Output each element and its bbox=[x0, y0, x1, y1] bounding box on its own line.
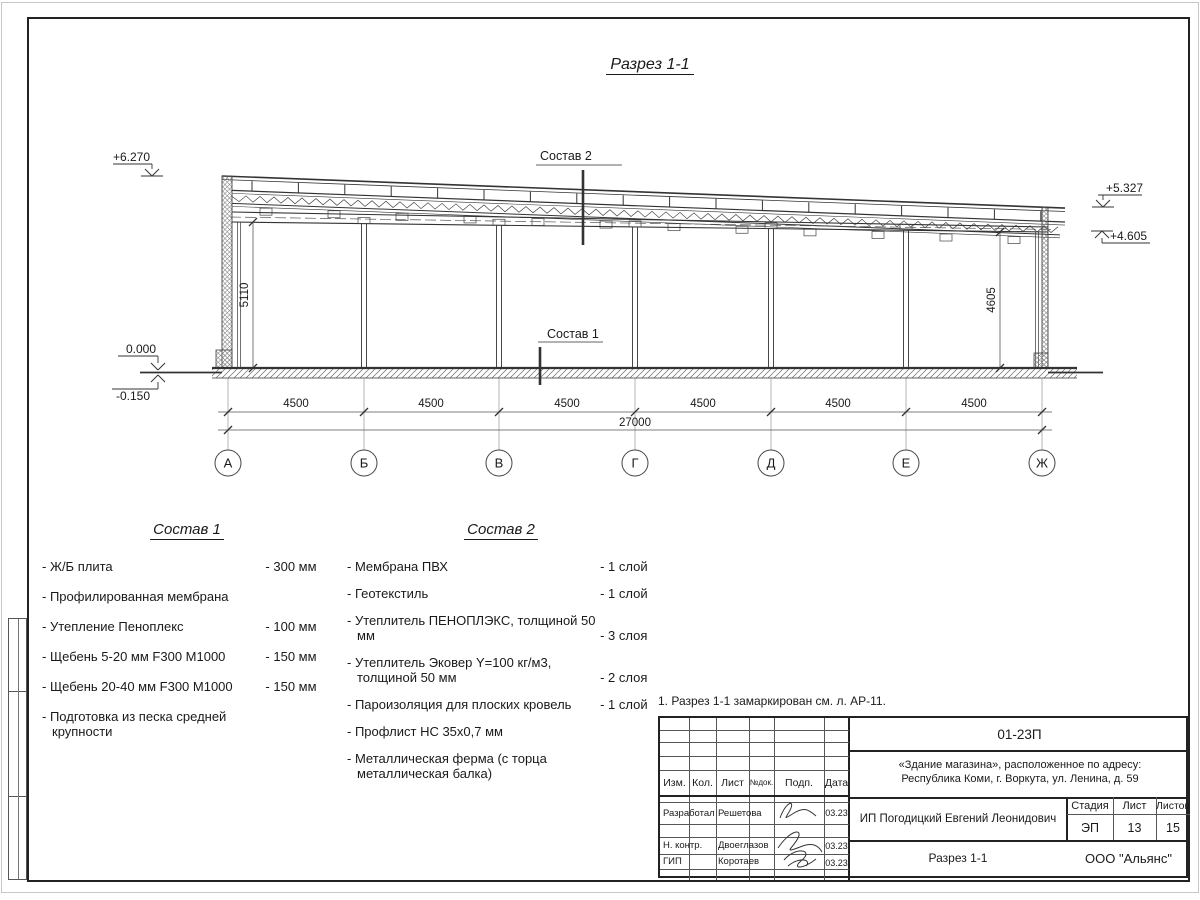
axis-bubble-label: Ж bbox=[1036, 456, 1048, 471]
stamp-role: ГИП bbox=[663, 854, 717, 869]
stamp-project-line2: Республика Коми, г. Воркута, ул. Ленина,… bbox=[860, 772, 1180, 786]
stamp-client: ИП Погодицкий Евгений Леонидович bbox=[852, 802, 1064, 836]
stamp-col-list: Лист bbox=[716, 770, 749, 795]
marker-label-sostav1: Состав 1 bbox=[547, 327, 599, 341]
elevation-beam-right: +4.605 bbox=[1110, 229, 1147, 243]
dim-4500: 4500 bbox=[283, 398, 309, 410]
list-item: - Пароизоляция для плоских кровель- 1 сл… bbox=[347, 697, 655, 712]
dim-4500: 4500 bbox=[418, 398, 444, 410]
stamp-col-podp: Подп. bbox=[774, 770, 824, 795]
elevation-parapet-left: +6.270 bbox=[113, 150, 150, 164]
stamp-stage-label: Стадия bbox=[1067, 798, 1113, 814]
list-item: - Профлист НС 35х0,7 мм bbox=[347, 724, 655, 739]
dim-4500: 4500 bbox=[554, 398, 580, 410]
sheet-note: 1. Разрез 1-1 замаркирован см. л. АР-11. bbox=[658, 694, 886, 708]
stamp-company: ООО "Альянс" bbox=[1067, 840, 1190, 876]
stamp-name: Решетова bbox=[718, 802, 774, 824]
signature-strokes bbox=[772, 796, 830, 878]
height-dim-left: 5110 bbox=[239, 283, 251, 308]
stamp-grid-line bbox=[660, 742, 849, 743]
dim-total: 27000 bbox=[619, 417, 651, 429]
stamp-role: Н. контр. bbox=[663, 837, 717, 854]
sostav2-title: Состав 2 bbox=[347, 522, 655, 537]
axis-bubble-label: Е bbox=[902, 456, 911, 471]
stamp-name: Коротаев bbox=[718, 854, 774, 869]
marker-label-sostav2: Состав 2 bbox=[540, 149, 592, 163]
sostav2-list: Состав 2 - Мембрана ПВХ- 1 слой - Геотек… bbox=[347, 522, 655, 793]
stamp-name: Двоеглазов bbox=[718, 837, 774, 854]
drawing-sheet: Разрез 1-1 +6.270 0.000 -0.150 +5.327 +4… bbox=[0, 0, 1200, 900]
section-geometry bbox=[112, 164, 1150, 476]
list-item: - Утеплитель Эковер Y=100 кг/м3, толщино… bbox=[347, 655, 655, 685]
stamp-sheets-value: 15 bbox=[1156, 815, 1190, 840]
stamp-doc-number: 01-23П bbox=[849, 722, 1190, 746]
stamp-sheet-value: 13 bbox=[1113, 815, 1156, 840]
elevation-minus: -0.150 bbox=[116, 389, 150, 403]
list-item: - Мембрана ПВХ- 1 слой bbox=[347, 559, 655, 574]
stamp-sheets-label: Листов bbox=[1156, 798, 1190, 814]
dim-4500: 4500 bbox=[961, 398, 987, 410]
sostav1-list: Состав 1 - Ж/Б плита- 300 мм - Профилиро… bbox=[42, 522, 332, 754]
axis-bubble-label: А bbox=[224, 456, 233, 471]
list-item: - Подготовка из песка средней крупности bbox=[42, 709, 332, 739]
axis-bubble-label: Г bbox=[631, 456, 638, 471]
stamp-grid-line bbox=[849, 750, 1190, 752]
elevation-parapet-right: +5.327 bbox=[1106, 181, 1143, 195]
list-item: - Утеплитель ПЕНОПЛЭКС, толщиной 50 мм- … bbox=[347, 613, 655, 643]
dim-4500: 4500 bbox=[825, 398, 851, 410]
stamp-stage-value: ЭП bbox=[1067, 815, 1113, 840]
list-item: - Геотекстиль- 1 слой bbox=[347, 586, 655, 601]
stamp-col-ndok: №док. bbox=[749, 770, 774, 795]
drawing-annotations: +6.270 0.000 -0.150 +5.327 +4.605 5110 4… bbox=[113, 149, 1147, 471]
title-block: Изм. Кол. Лист №док. Подп. Дата Разработ… bbox=[658, 716, 1188, 878]
elevation-zero: 0.000 bbox=[126, 342, 156, 356]
list-item: - Утепление Пеноплекс- 100 мм bbox=[42, 619, 332, 634]
stamp-col-data: Дата bbox=[824, 770, 849, 795]
axis-bubble-label: В bbox=[495, 456, 504, 471]
list-item: - Металлическая ферма (с торца металличе… bbox=[347, 751, 655, 781]
dim-4500: 4500 bbox=[690, 398, 716, 410]
stamp-grid-line bbox=[660, 730, 849, 731]
axis-bubble-label: Б bbox=[360, 456, 369, 471]
list-item: - Ж/Б плита- 300 мм bbox=[42, 559, 332, 574]
list-item: - Щебень 20-40 мм F300 М1000- 150 мм bbox=[42, 679, 332, 694]
height-dim-right: 4605 bbox=[986, 287, 998, 313]
list-item: - Профилированная мембрана bbox=[42, 589, 332, 604]
stamp-role: Разработал bbox=[663, 802, 717, 824]
stamp-section-title: Разрез 1-1 bbox=[849, 840, 1067, 876]
stamp-project-line1: «Здание магазина», расположенное по адре… bbox=[860, 758, 1180, 772]
stamp-col-kol: Кол. bbox=[689, 770, 716, 795]
sostav1-title: Состав 1 bbox=[42, 522, 332, 537]
stamp-grid-line bbox=[660, 756, 849, 757]
stamp-col-izm: Изм. bbox=[660, 770, 689, 795]
list-item: - Щебень 5-20 мм F300 М1000- 150 мм bbox=[42, 649, 332, 664]
stamp-sheet-label: Лист bbox=[1113, 798, 1156, 814]
axis-bubble-label: Д bbox=[767, 456, 776, 471]
